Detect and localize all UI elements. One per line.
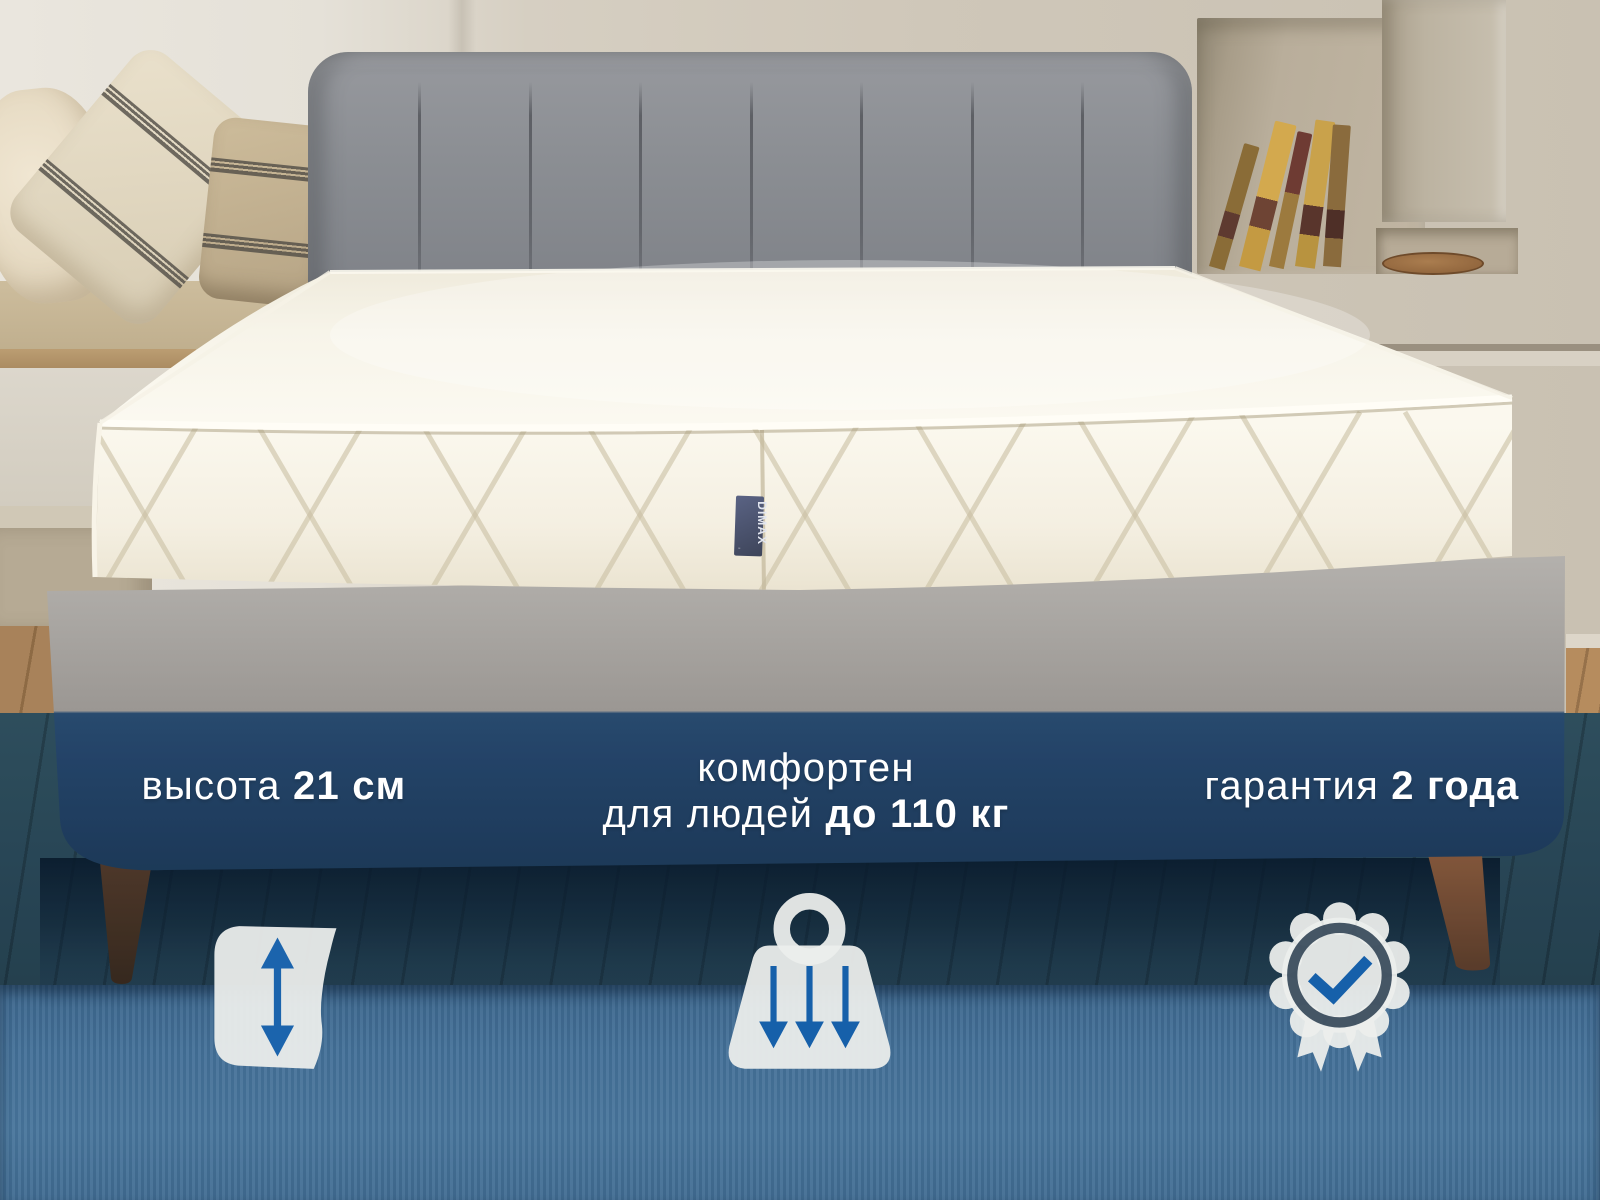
feature-height-label: высота bbox=[142, 764, 293, 808]
feature-comfort-line1: комфортен bbox=[697, 746, 914, 791]
feature-warranty-label: гарантия bbox=[1204, 764, 1391, 808]
feature-height-value: 21 см bbox=[293, 764, 406, 808]
feature-height-text: высота 21 см bbox=[142, 764, 407, 809]
feature-comfort-line2: для людей до 110 кг bbox=[602, 792, 1009, 837]
feature-comfort-value: до 110 кг bbox=[825, 792, 1009, 836]
mattress-tag-text: DIMAX bbox=[755, 501, 769, 545]
down-arrows bbox=[759, 966, 860, 1048]
feature-warranty-text: гарантия 2 года bbox=[1204, 764, 1519, 809]
mattress-height-icon bbox=[208, 922, 348, 1072]
award-badge-icon bbox=[1252, 895, 1427, 1080]
feature-comfort-word: комфортен bbox=[697, 746, 914, 790]
feature-warranty-value: 2 года bbox=[1391, 764, 1519, 808]
weight-load-icon bbox=[722, 892, 897, 1077]
product-promo-image: DIMAX высота 21 см комфортен для людей д… bbox=[0, 0, 1600, 1200]
feature-comfort-label: для людей bbox=[602, 792, 825, 836]
